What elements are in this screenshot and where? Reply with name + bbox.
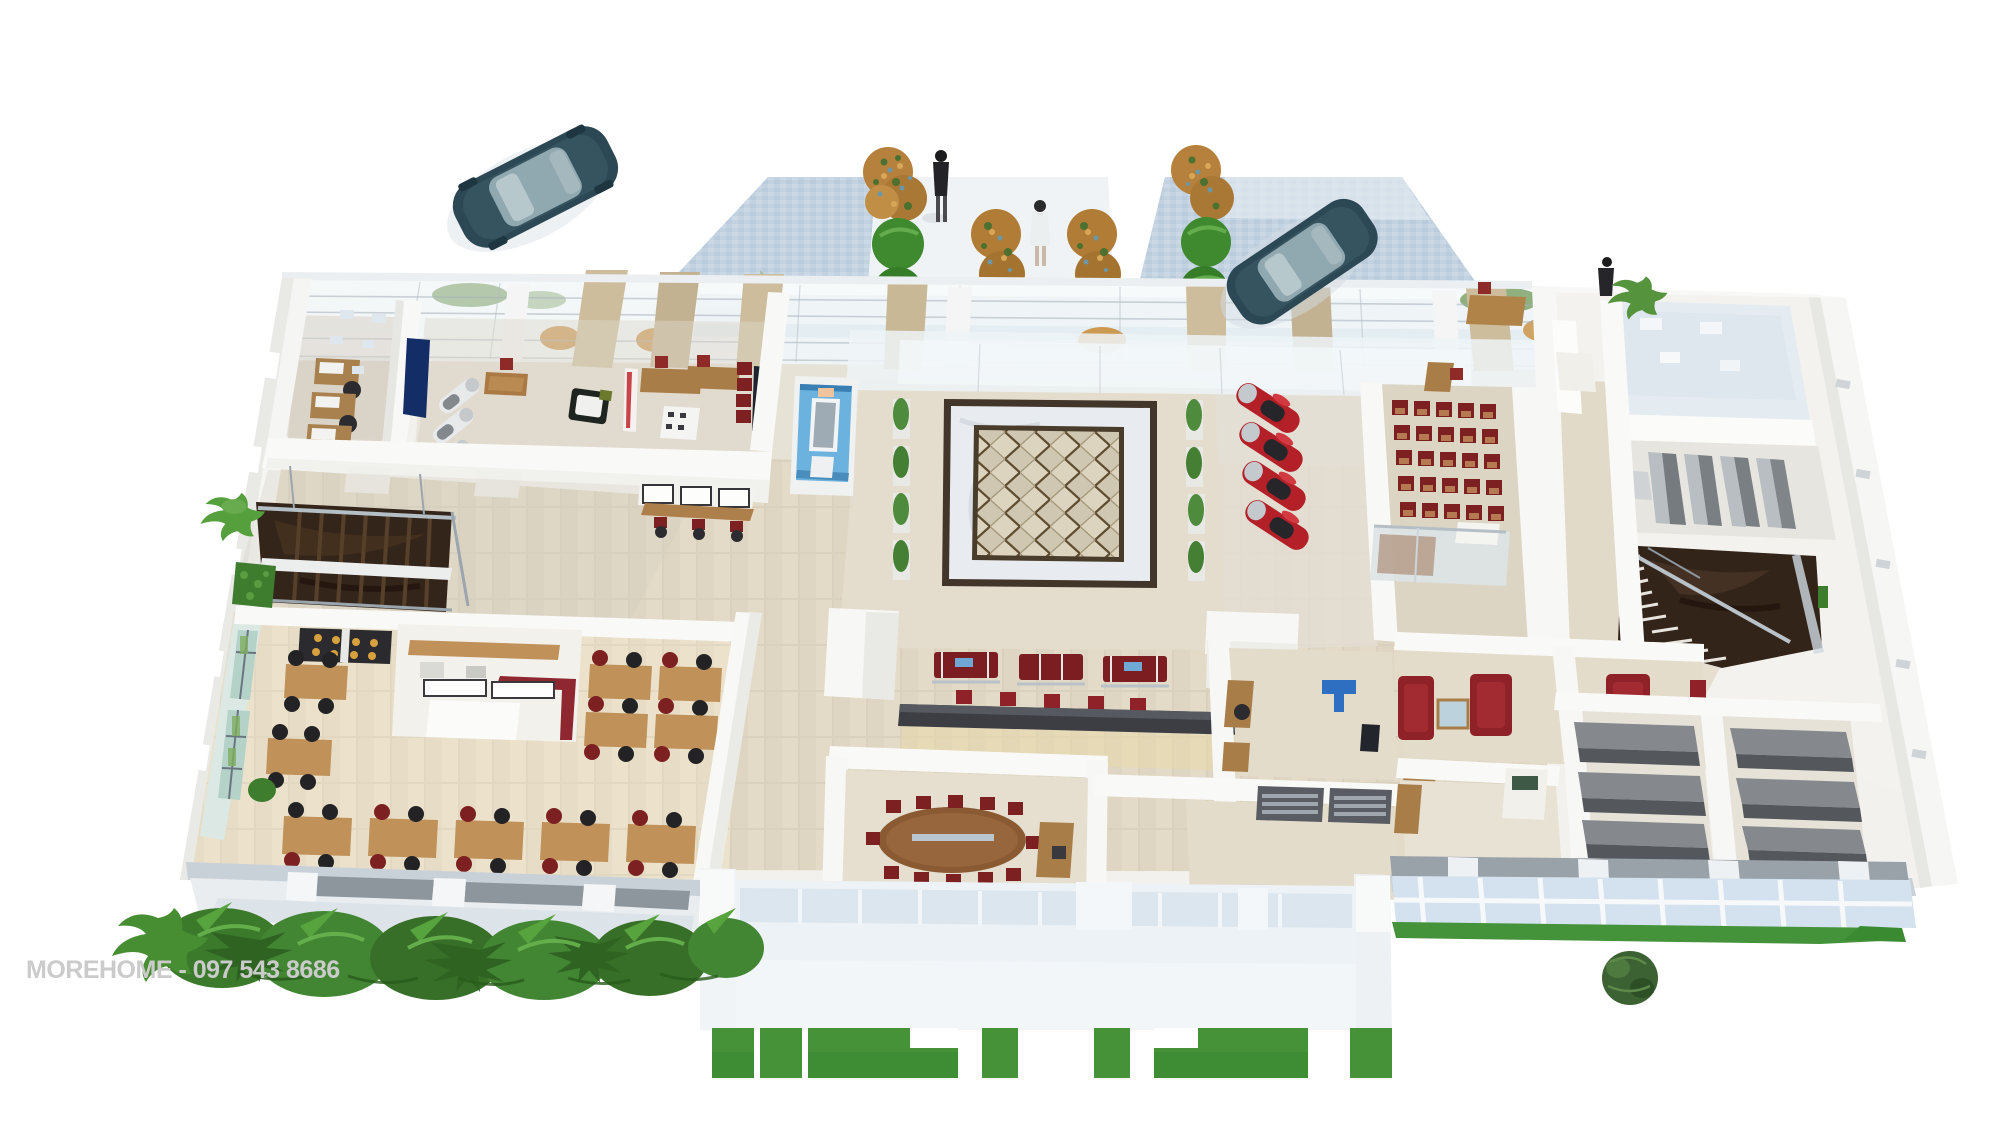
svg-text:MOREHOME - 097 543 8686: MOREHOME - 097 543 8686 <box>26 956 340 984</box>
